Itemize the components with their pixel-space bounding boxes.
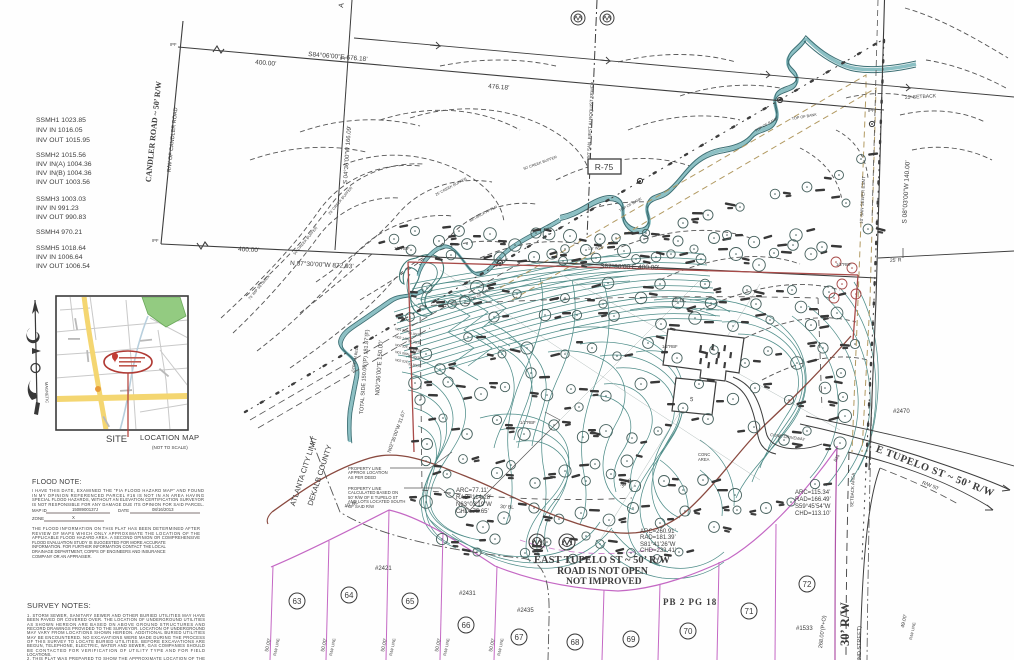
svg-text:ZONE: ZONE <box>32 516 44 521</box>
svg-text:SSMH3 1003.03: SSMH3 1003.03 <box>36 196 86 203</box>
svg-text:25’ R: 25’ R <box>890 257 902 264</box>
svg-text:AREA: AREA <box>698 457 710 462</box>
svg-text:IS NOT RESPONSIBLE FOR ANY DAM: IS NOT RESPONSIBLE FOR ANY DAMAGE DUE IT… <box>32 502 204 507</box>
svg-text:1/2”RBF: 1/2”RBF <box>836 262 852 267</box>
svg-text:63: 63 <box>293 597 302 606</box>
svg-text:ARC=115.34’: ARC=115.34’ <box>795 490 830 496</box>
svg-text:INV IN 1016.05: INV IN 1016.05 <box>36 127 83 134</box>
svg-text:SSMH2 1015.56: SSMH2 1015.56 <box>36 152 86 159</box>
svg-text:70: 70 <box>684 627 693 636</box>
svg-text:EAST TUPELO ST ~ 50’ R/W: EAST TUPELO ST ~ 50’ R/W <box>534 555 671 566</box>
svg-text:2. THIS PLAT WAS PREPARED TO S: 2. THIS PLAT WAS PREPARED TO SHOW THE AP… <box>27 656 205 660</box>
svg-text:(NOT TO SCALE): (NOT TO SCALE) <box>152 445 188 450</box>
svg-text:AS PER DEED: AS PER DEED <box>348 475 376 480</box>
svg-text:#2470: #2470 <box>893 409 910 415</box>
svg-text:SSMH5 1018.64: SSMH5 1018.64 <box>36 245 86 252</box>
svg-text:N63°03’19”W: N63°03’19”W <box>456 502 492 508</box>
svg-text:SSMH4 970.21: SSMH4 970.21 <box>36 229 82 236</box>
svg-text:SURVEY NOTES:: SURVEY NOTES: <box>27 601 91 610</box>
svg-text:400.00’: 400.00’ <box>238 246 260 254</box>
svg-text:IPF: IPF <box>152 238 159 243</box>
svg-text:30’ R/W: 30’ R/W <box>838 602 852 646</box>
svg-text:67: 67 <box>515 633 524 642</box>
svg-text:IPF: IPF <box>170 42 177 47</box>
svg-text:INV IN(A) 1004.36: INV IN(A) 1004.36 <box>36 161 92 168</box>
svg-text:LOCATION MAP: LOCATION MAP <box>140 433 199 442</box>
svg-text:CHD=113.10’: CHD=113.10’ <box>795 511 831 517</box>
svg-text:66: 66 <box>462 621 471 630</box>
svg-text:1508900137J: 1508900137J <box>72 507 98 512</box>
svg-text:NOT IMPROVED: NOT IMPROVED <box>566 577 642 587</box>
svg-text:IPF: IPF <box>340 56 347 61</box>
svg-text:S87°30’00 E 400.00’: S87°30’00 E 400.00’ <box>600 262 660 272</box>
svg-text:INV IN(B) 1004.36: INV IN(B) 1004.36 <box>36 170 92 177</box>
svg-text:RAD=181.39’: RAD=181.39’ <box>640 535 676 541</box>
svg-text:68: 68 <box>571 638 580 647</box>
svg-text:S59°45’54”W: S59°45’54”W <box>795 504 831 510</box>
svg-text:#2421: #2421 <box>375 566 392 572</box>
svg-text:SITE: SITE <box>106 434 127 445</box>
svg-text:71: 71 <box>745 607 754 616</box>
svg-text:69: 69 <box>627 635 636 644</box>
svg-text:ROAD IS NOT OPEN: ROAD IS NOT OPEN <box>557 566 649 577</box>
svg-text:#2431: #2431 <box>459 591 476 597</box>
svg-text:MAP ID: MAP ID <box>32 508 47 513</box>
svg-text:1/2”RBF: 1/2”RBF <box>662 344 678 349</box>
svg-text:X: X <box>72 515 75 520</box>
svg-text:BE CONTACTED FOR VERIFICATION: BE CONTACTED FOR VERIFICATION OF UTILITY… <box>27 648 205 653</box>
svg-text:RAD=114.28’: RAD=114.28’ <box>456 495 491 501</box>
svg-text:ARC=77.11’: ARC=77.11’ <box>456 488 488 494</box>
svg-text:INV IN 1006.64: INV IN 1006.64 <box>36 254 83 261</box>
svg-text:DATE: DATE <box>118 508 129 513</box>
svg-text:IPF: IPF <box>868 108 875 113</box>
svg-text:PB 2 PG 18: PB 2 PG 18 <box>663 597 717 607</box>
svg-text:INV OUT 990.83: INV OUT 990.83 <box>36 214 86 221</box>
svg-text:72: 72 <box>803 580 812 589</box>
svg-text:INV OUT 1015.95: INV OUT 1015.95 <box>36 137 90 144</box>
svg-text:#1533: #1533 <box>796 626 813 632</box>
svg-text:30’ BL: 30’ BL <box>500 504 515 511</box>
svg-text:R-75: R-75 <box>595 162 614 172</box>
svg-text:1/2”RBF: 1/2”RBF <box>394 246 410 251</box>
svg-text:SSMH1 1023.85: SSMH1 1023.85 <box>36 117 86 124</box>
svg-text:COMPANY OR AN APPRAISER.: COMPANY OR AN APPRAISER. <box>32 554 92 559</box>
svg-text:CHD=75.65’: CHD=75.65’ <box>456 509 489 515</box>
svg-text:FLOOD NOTE:: FLOOD NOTE: <box>32 479 82 486</box>
svg-text:(2ND STREET): (2ND STREET) <box>857 626 863 660</box>
svg-text:64: 64 <box>345 591 354 600</box>
svg-text:08/16/2013: 08/16/2013 <box>152 507 174 512</box>
svg-text:1/2”RBF: 1/2”RBF <box>520 420 536 425</box>
svg-text:INV IN 991.23: INV IN 991.23 <box>36 205 79 212</box>
svg-text:MAGNETIC: MAGNETIC <box>44 382 50 403</box>
svg-text:INV OUT 1003.56: INV OUT 1003.56 <box>36 179 90 186</box>
svg-text:RAD=166.49’: RAD=166.49’ <box>795 497 831 503</box>
svg-text:INV OUT 1006.54: INV OUT 1006.54 <box>36 263 90 270</box>
svg-text:65: 65 <box>406 597 415 606</box>
svg-text:CHD=233.41’: CHD=233.41’ <box>640 548 676 554</box>
svg-text:#2435: #2435 <box>517 608 534 614</box>
